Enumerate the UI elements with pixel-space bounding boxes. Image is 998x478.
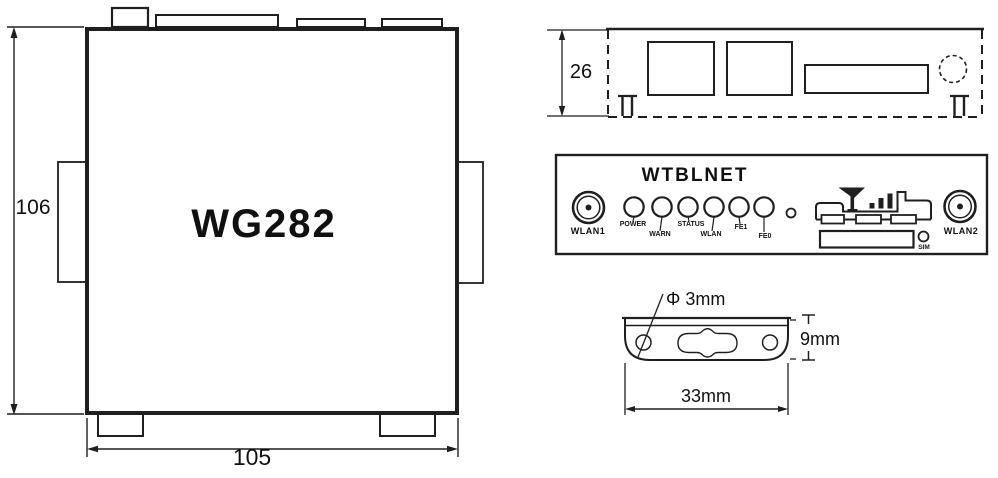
top-tab-wide bbox=[156, 15, 278, 27]
bracket-detail-drawing bbox=[590, 283, 920, 428]
reset-button bbox=[787, 209, 796, 218]
terminal-block bbox=[805, 65, 928, 93]
mount-foot-left bbox=[618, 96, 637, 116]
signal-bars-icon bbox=[870, 194, 893, 209]
antenna-signal-icon bbox=[816, 188, 931, 224]
led-label-wlan: WLAN bbox=[689, 231, 733, 238]
panel-title: WTBLNET bbox=[620, 166, 770, 186]
dim-9mm-label: 9mm bbox=[800, 330, 840, 349]
ethernet-port-1 bbox=[648, 42, 714, 95]
led-label-power: POWER bbox=[609, 221, 657, 228]
dim-33mm-label: 33mm bbox=[656, 387, 756, 406]
led-label-warn: WARN bbox=[638, 231, 682, 238]
model-label: WG282 bbox=[114, 203, 414, 245]
led-fe0 bbox=[754, 197, 773, 216]
top-tab-small bbox=[112, 8, 148, 27]
dim-106-label: 106 bbox=[8, 197, 58, 219]
dim-105-label: 105 bbox=[202, 445, 302, 469]
bottom-foot-left bbox=[98, 414, 143, 436]
led-power bbox=[624, 197, 643, 216]
bracket-center-slot bbox=[678, 329, 737, 357]
led-label-fe1: FE1 bbox=[723, 224, 759, 231]
ethernet-port-2 bbox=[727, 42, 792, 95]
side-tab-right bbox=[458, 162, 483, 283]
front-panel-drawing bbox=[550, 150, 998, 260]
wlan1-label: WLAN1 bbox=[555, 227, 621, 236]
wlan1-connector bbox=[573, 192, 604, 223]
led-fe1 bbox=[729, 197, 748, 216]
rear-view-drawing bbox=[540, 20, 998, 125]
led-label-fe0: FE0 bbox=[747, 233, 783, 240]
sim-eject-hole bbox=[919, 232, 929, 242]
dimension-drawing-sheet: 106 WG282 105 26 bbox=[0, 0, 998, 478]
hole-dim-label: Φ 3mm bbox=[666, 290, 725, 309]
led-status bbox=[678, 197, 697, 216]
mount-foot-right bbox=[950, 96, 969, 116]
sim-slot bbox=[820, 231, 914, 248]
side-tab-left bbox=[58, 162, 87, 282]
wlan2-label: WLAN2 bbox=[928, 227, 994, 236]
antenna-hole bbox=[940, 56, 967, 83]
top-tab-thin-1 bbox=[297, 19, 365, 27]
led-wlan bbox=[704, 197, 723, 216]
top-tab-thin-2 bbox=[382, 19, 442, 27]
wlan2-connector bbox=[945, 191, 976, 222]
led-warn bbox=[652, 197, 671, 216]
dim-26-label: 26 bbox=[564, 62, 598, 83]
sim-label: SIM bbox=[910, 245, 938, 252]
bottom-foot-right bbox=[380, 414, 435, 436]
led-label-status: STATUS bbox=[667, 221, 715, 228]
bracket-outline bbox=[622, 318, 791, 360]
bracket-hole-right bbox=[763, 335, 778, 350]
